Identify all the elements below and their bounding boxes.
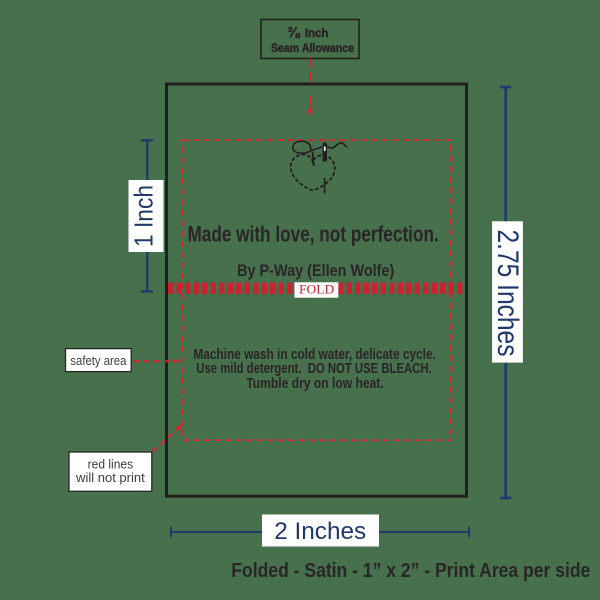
svg-text:Folded - Satin - 1” x 2” - Pri: Folded - Satin - 1” x 2” - Print Area pe… (231, 560, 590, 582)
svg-text:red lines: red lines (88, 458, 134, 472)
svg-text:Use mild detergent. DO NOT US: Use mild detergent. DO NOT USE BLEACH. (196, 361, 431, 377)
svg-text:Seam Allowance: Seam Allowance (271, 43, 354, 55)
svg-text:2.75 Inches: 2.75 Inches (491, 230, 524, 357)
svg-text:Tumble dry on low heat.: Tumble dry on low heat. (246, 376, 384, 392)
svg-text:Made with love, not perfection: Made with love, not perfection. (187, 222, 438, 247)
svg-text:FOLD: FOLD (299, 282, 334, 296)
svg-text:will not print: will not print (75, 471, 145, 485)
svg-text:1 Inch: 1 Inch (129, 185, 159, 247)
svg-text:safety area: safety area (70, 354, 126, 368)
svg-text:By P-Way (Ellen Wolfe): By P-Way (Ellen Wolfe) (237, 262, 394, 280)
svg-text:⅜ Inch: ⅜ Inch (288, 25, 329, 41)
svg-text:2 Inches: 2 Inches (274, 518, 366, 545)
